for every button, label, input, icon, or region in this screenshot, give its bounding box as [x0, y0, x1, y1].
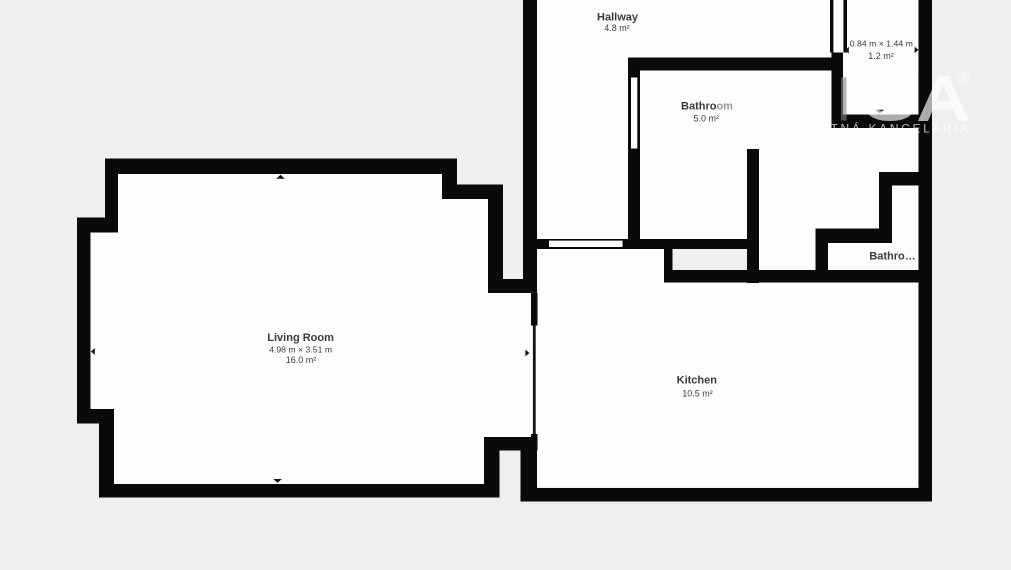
- svg-text:Living Room: Living Room: [267, 332, 334, 344]
- svg-text:1.2 m²: 1.2 m²: [868, 51, 894, 61]
- svg-text:10.5 m²: 10.5 m²: [682, 388, 713, 398]
- svg-text:Kitchen: Kitchen: [677, 375, 718, 387]
- svg-text:16.0 m²: 16.0 m²: [286, 355, 317, 365]
- svg-text:®: ®: [957, 69, 970, 89]
- svg-text:4.98 m × 3.51 m: 4.98 m × 3.51 m: [269, 345, 332, 355]
- svg-text:Bathro…: Bathro…: [869, 251, 915, 263]
- svg-text:5.0 m²: 5.0 m²: [694, 113, 720, 123]
- svg-text:4.8 m²: 4.8 m²: [604, 23, 630, 33]
- svg-text:Hallway: Hallway: [597, 12, 639, 24]
- svg-text:0.84 m × 1.44 m: 0.84 m × 1.44 m: [850, 38, 913, 48]
